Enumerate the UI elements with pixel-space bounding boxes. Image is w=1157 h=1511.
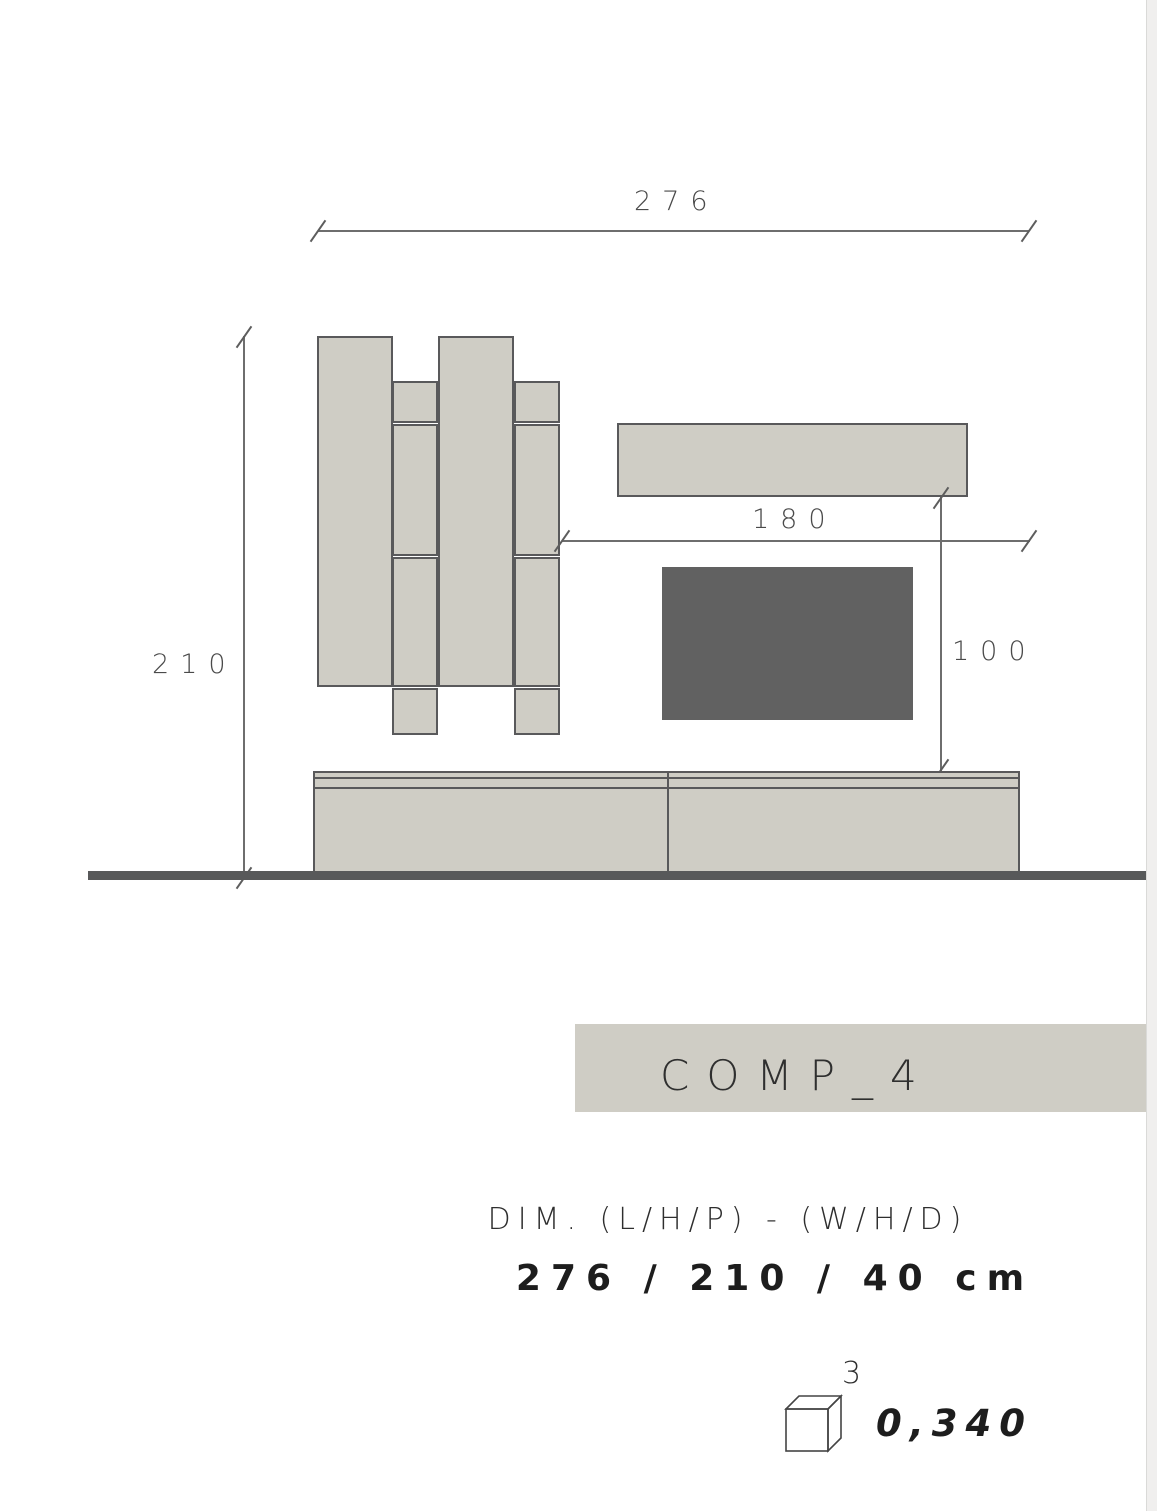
shelf-box [392, 381, 438, 423]
shelf-box [514, 424, 560, 556]
composition-name: COMP_4 [660, 1051, 934, 1100]
cubic-meter-exponent: 3 [842, 1356, 861, 1391]
cabinet-divider [667, 773, 669, 871]
base-cabinet [313, 771, 1020, 873]
tall-panel-left [317, 336, 393, 687]
tall-panel-right [438, 336, 514, 687]
dim-shelf-span-label: 180 [752, 504, 837, 535]
volume-value: 0,340 [876, 1402, 1033, 1445]
dim-shelf-span-line [562, 540, 1030, 542]
dim-tv-drop-line [940, 497, 942, 771]
dim-total-height-line [243, 336, 245, 879]
shelf-box [392, 557, 438, 687]
tv-panel [662, 567, 913, 720]
dim-total-height-label: 210 [152, 649, 237, 680]
shelf-box [514, 688, 560, 735]
catalog-page: 276 210 180 100 COMP_4 [0, 0, 1157, 1511]
floor-line [88, 871, 1150, 880]
dim-total-width-label: 276 [634, 186, 719, 217]
shelf-box [392, 688, 438, 735]
dimension-values: 276 / 210 / 40 cm [498, 1258, 1052, 1299]
shelf-box [514, 557, 560, 687]
shelf-box [392, 424, 438, 556]
shelf-box [514, 381, 560, 423]
dim-total-width-line [318, 230, 1029, 232]
scrollbar[interactable] [1146, 0, 1157, 1511]
wall-cabinet [617, 423, 968, 497]
cube-icon [780, 1388, 844, 1460]
dim-tv-drop-label: 100 [952, 636, 1037, 667]
dimension-caption: DIM. (L/H/P) - (W/H/D) [404, 1202, 1052, 1237]
